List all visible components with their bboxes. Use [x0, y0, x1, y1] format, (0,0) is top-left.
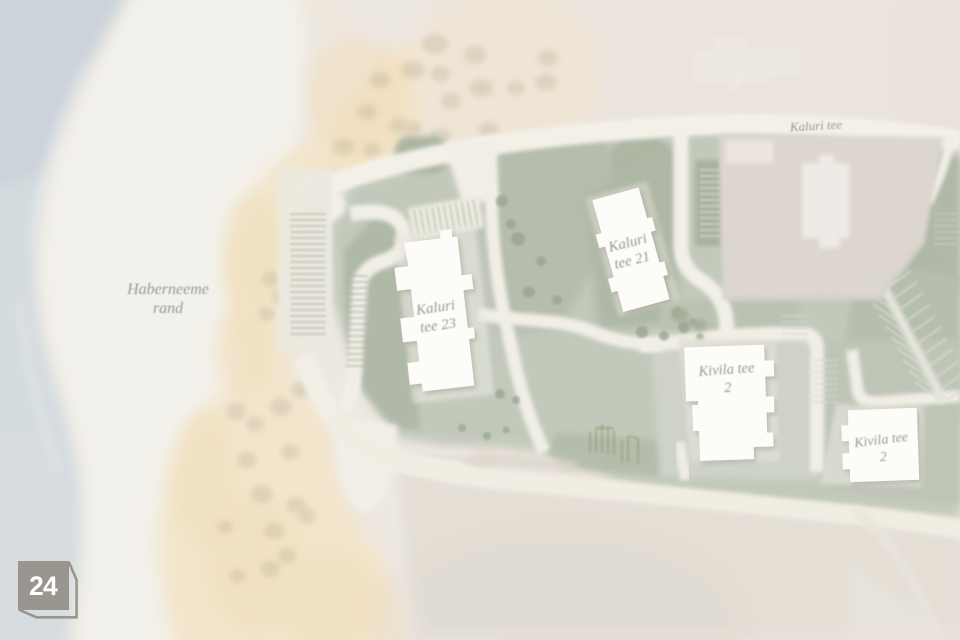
svg-text:24: 24 — [29, 571, 58, 601]
